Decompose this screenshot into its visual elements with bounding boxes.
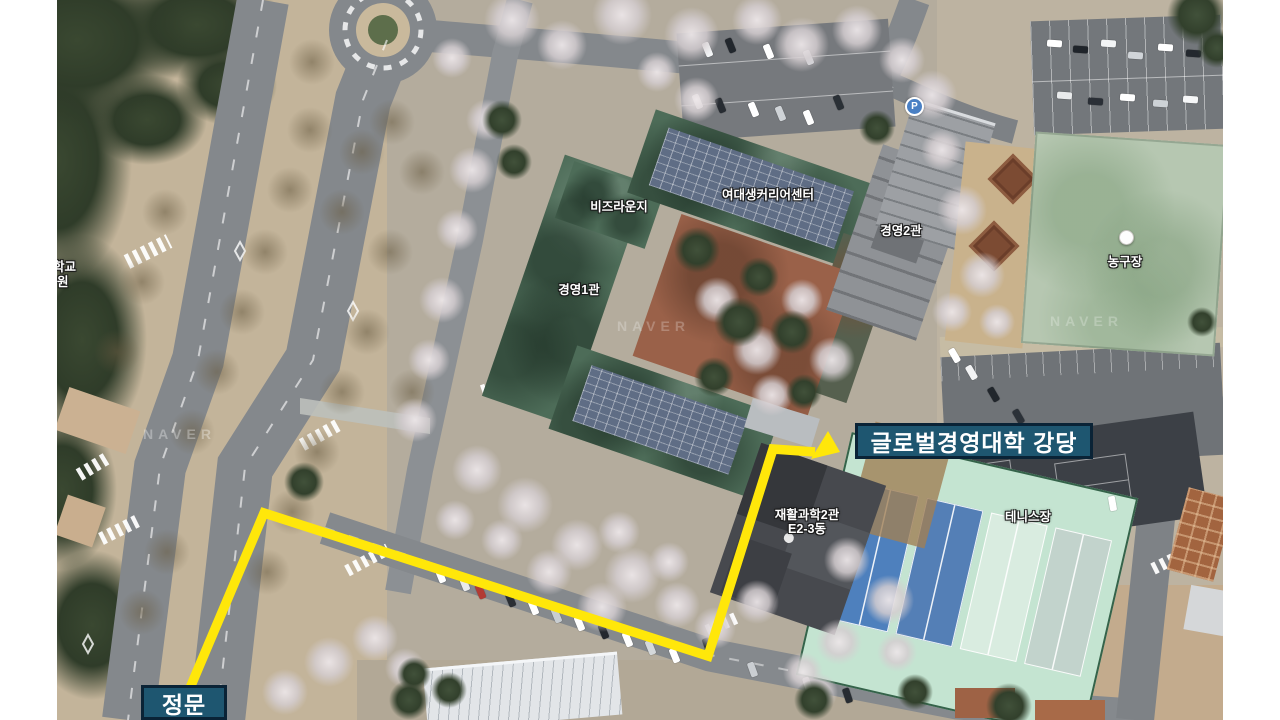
label-mgmt-hall-2: 경영2관 (880, 220, 921, 239)
destination-label-box[interactable]: 글로벌경영대학 강당 (855, 423, 1093, 459)
roof-section (720, 536, 792, 611)
slide-canvas: NAVER NAVER NAVER P 비즈라운지 여대생커리어센터 경영1관 … (0, 0, 1280, 720)
parking-lot-top-center (676, 19, 895, 142)
naver-watermark: NAVER (617, 318, 690, 334)
parking-icon[interactable]: P (905, 97, 924, 116)
building-left-1 (57, 387, 140, 454)
label-tennis-court: 테니스장 (1005, 506, 1051, 525)
plaza-structure (1035, 700, 1105, 720)
naver-watermark: NAVER (143, 426, 216, 442)
label-mgmt-hall-1: 경영1관 (558, 279, 599, 298)
building-left-2 (57, 495, 106, 548)
label-basketball-court: 농구장 (1108, 251, 1143, 270)
label-rehab-science-2: E2-3동 (788, 518, 826, 537)
gate-label-box[interactable]: 정문 (141, 685, 227, 720)
satellite-map[interactable]: NAVER NAVER NAVER P 비즈라운지 여대생커리어센터 경영1관 … (57, 0, 1223, 720)
plaza-structure (955, 688, 1015, 718)
label-career-center: 여대생커리어센터 (722, 184, 814, 203)
parking-lot-top-right (1030, 15, 1223, 136)
naver-watermark: NAVER (1050, 313, 1123, 329)
label-left-edge-partial-2: 원 (57, 271, 69, 290)
building-southeast-white (1183, 585, 1223, 636)
basketball-court-dot[interactable] (1119, 230, 1134, 245)
label-biz-lounge: 비즈라운지 (590, 196, 648, 215)
